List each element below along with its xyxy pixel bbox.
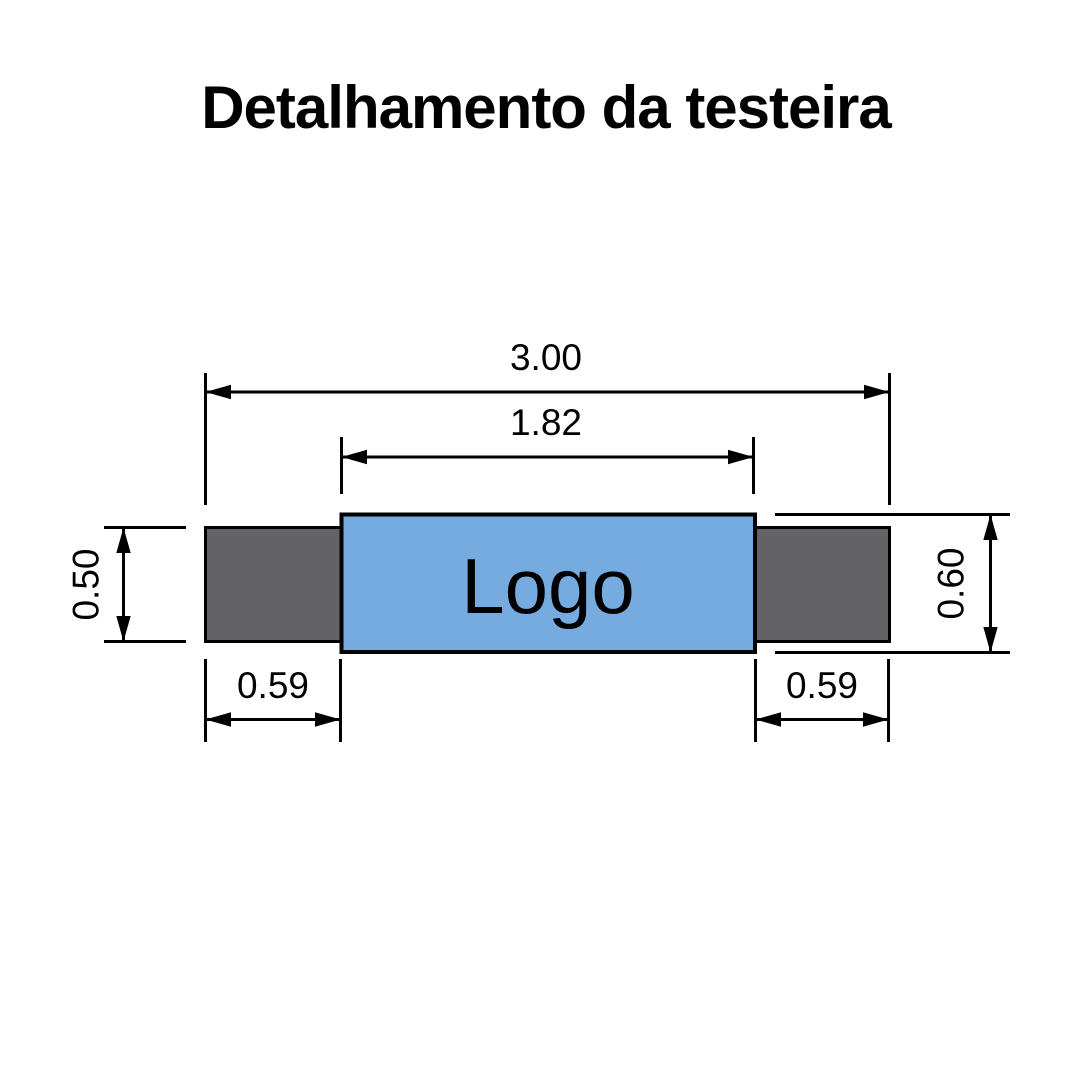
arrowhead-right bbox=[315, 712, 341, 726]
dim-logo-height-label: 0.60 bbox=[931, 547, 972, 619]
arrowhead-right bbox=[864, 385, 890, 399]
dim-side-height-label: 0.50 bbox=[66, 548, 107, 620]
testeira-detail-diagram: Detalhamento da testeira Logo 3.00 1.82 bbox=[0, 0, 1080, 1080]
dim-logo-width-label: 1.82 bbox=[510, 402, 582, 443]
dim-left-panel-width-label: 0.59 bbox=[237, 665, 309, 706]
arrowhead-left bbox=[756, 712, 782, 726]
panels-group: Logo bbox=[206, 515, 890, 653]
left-side-panel bbox=[206, 528, 342, 642]
dim-side-height: 0.50 bbox=[66, 528, 187, 642]
arrowhead-right bbox=[728, 450, 754, 464]
arrowhead-left bbox=[206, 385, 232, 399]
dim-left-panel-width: 0.59 bbox=[206, 659, 341, 742]
arrowhead-down bbox=[116, 616, 130, 642]
arrowhead-up bbox=[983, 515, 997, 541]
arrowhead-down bbox=[983, 627, 997, 653]
arrowhead-left bbox=[206, 712, 232, 726]
page-title: Detalhamento da testeira bbox=[201, 74, 892, 141]
arrowhead-left bbox=[342, 450, 368, 464]
drawing-canvas: Detalhamento da testeira Logo 3.00 1.82 bbox=[0, 0, 1080, 1080]
dim-right-panel-width-label: 0.59 bbox=[786, 665, 858, 706]
arrowhead-right bbox=[863, 712, 889, 726]
logo-label: Logo bbox=[461, 542, 635, 630]
arrowhead-up bbox=[116, 528, 130, 554]
right-side-panel bbox=[755, 528, 890, 642]
dim-right-panel-width: 0.59 bbox=[756, 659, 889, 742]
dim-logo-width: 1.82 bbox=[342, 402, 754, 494]
dim-total-width-label: 3.00 bbox=[510, 337, 582, 378]
page: { "title": "Detalhamento da testeira", "… bbox=[0, 0, 1080, 1080]
